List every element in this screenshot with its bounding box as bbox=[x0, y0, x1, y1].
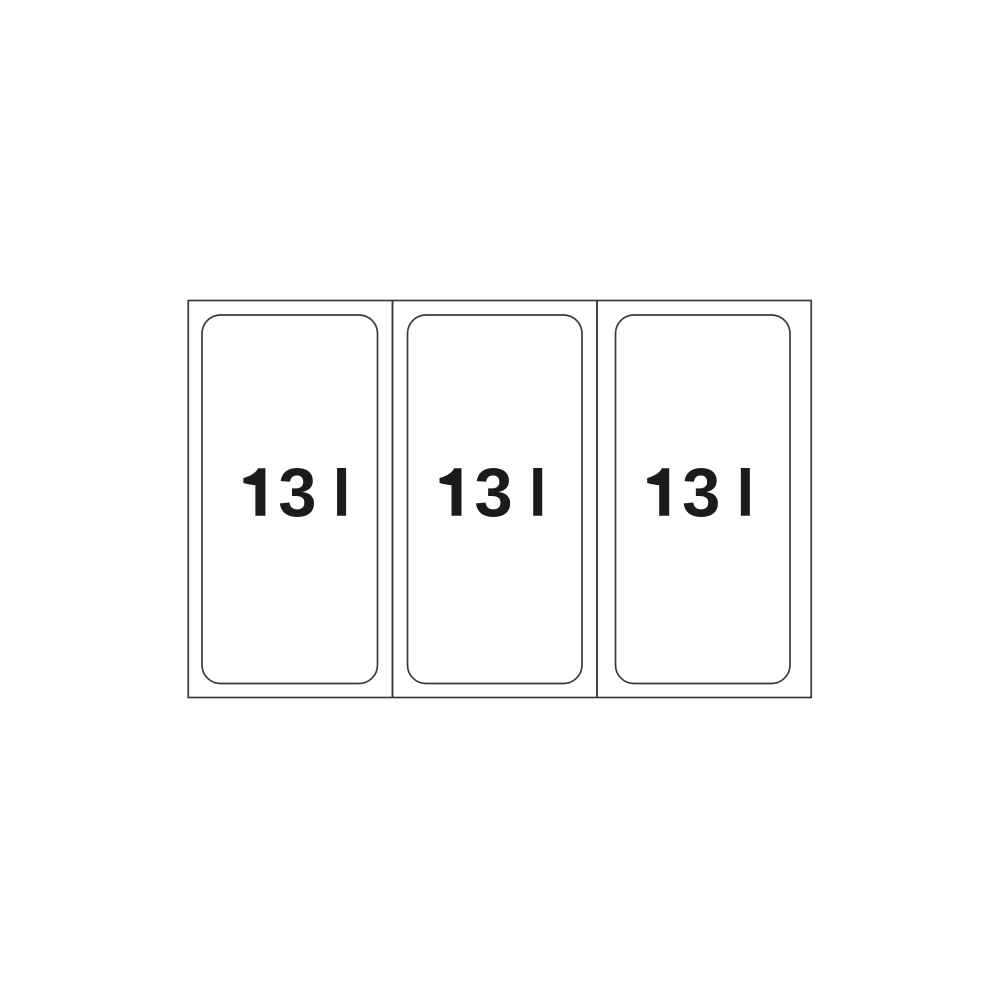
svg-text:3: 3 bbox=[682, 454, 720, 531]
svg-text:l: l bbox=[333, 457, 351, 530]
svg-text:l: l bbox=[529, 457, 547, 530]
svg-text:3: 3 bbox=[278, 454, 316, 531]
svg-text:3: 3 bbox=[474, 454, 512, 531]
svg-text:l: l bbox=[736, 457, 754, 530]
